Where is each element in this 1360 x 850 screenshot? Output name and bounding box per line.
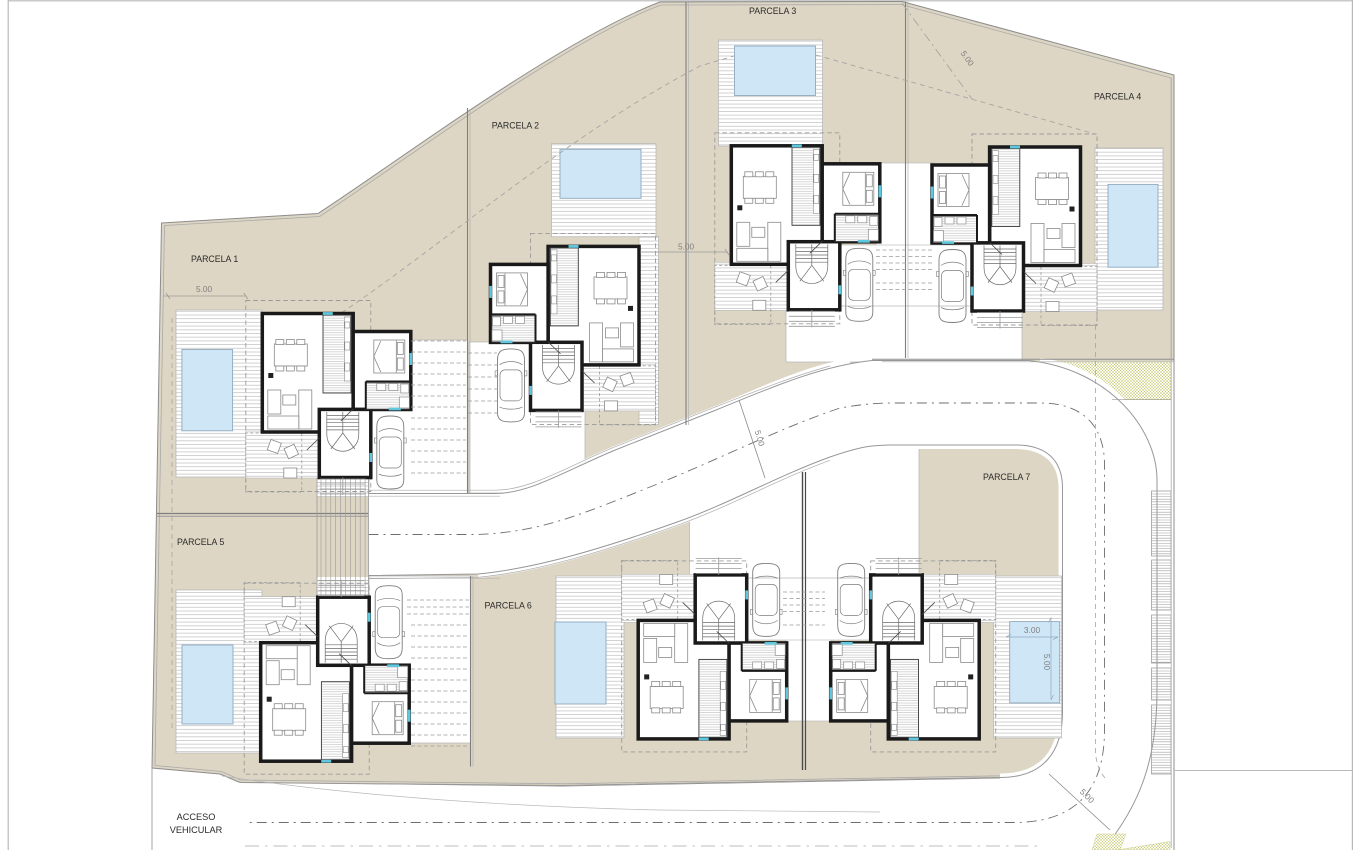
svg-text:3.00: 3.00 [1024, 625, 1041, 635]
svg-text:PARCELA 6: PARCELA 6 [485, 601, 532, 611]
svg-text:VEHICULAR: VEHICULAR [170, 825, 223, 835]
svg-text:PARCELA 2: PARCELA 2 [492, 121, 539, 131]
svg-text:5.00: 5.00 [196, 284, 213, 294]
svg-text:PARCELA 7: PARCELA 7 [983, 472, 1030, 482]
svg-text:PARCELA 1: PARCELA 1 [191, 254, 238, 264]
svg-text:PARCELA 4: PARCELA 4 [1094, 92, 1141, 102]
svg-text:PARCELA 5: PARCELA 5 [177, 537, 224, 547]
svg-text:5.00: 5.00 [678, 242, 695, 252]
svg-text:5.00: 5.00 [1042, 654, 1052, 671]
svg-text:PARCELA 3: PARCELA 3 [749, 6, 796, 16]
svg-text:ACCESO: ACCESO [177, 812, 216, 822]
